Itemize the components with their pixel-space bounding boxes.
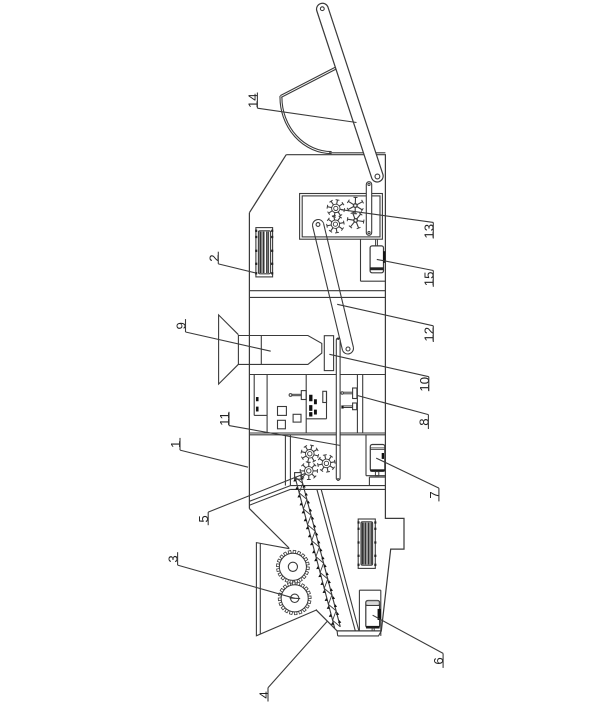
svg-text:8: 8 (416, 418, 431, 425)
svg-text:7: 7 (427, 491, 442, 498)
svg-text:1: 1 (168, 441, 183, 448)
svg-text:2: 2 (206, 254, 221, 261)
svg-text:14: 14 (245, 93, 260, 108)
svg-text:6: 6 (431, 657, 446, 664)
svg-text:9: 9 (174, 322, 189, 329)
svg-text:13: 13 (421, 224, 436, 239)
svg-text:5: 5 (196, 515, 211, 522)
svg-text:4: 4 (256, 691, 271, 698)
svg-text:10: 10 (417, 377, 432, 392)
svg-text:15: 15 (421, 272, 436, 287)
svg-text:3: 3 (166, 555, 181, 562)
svg-text:12: 12 (421, 327, 436, 342)
